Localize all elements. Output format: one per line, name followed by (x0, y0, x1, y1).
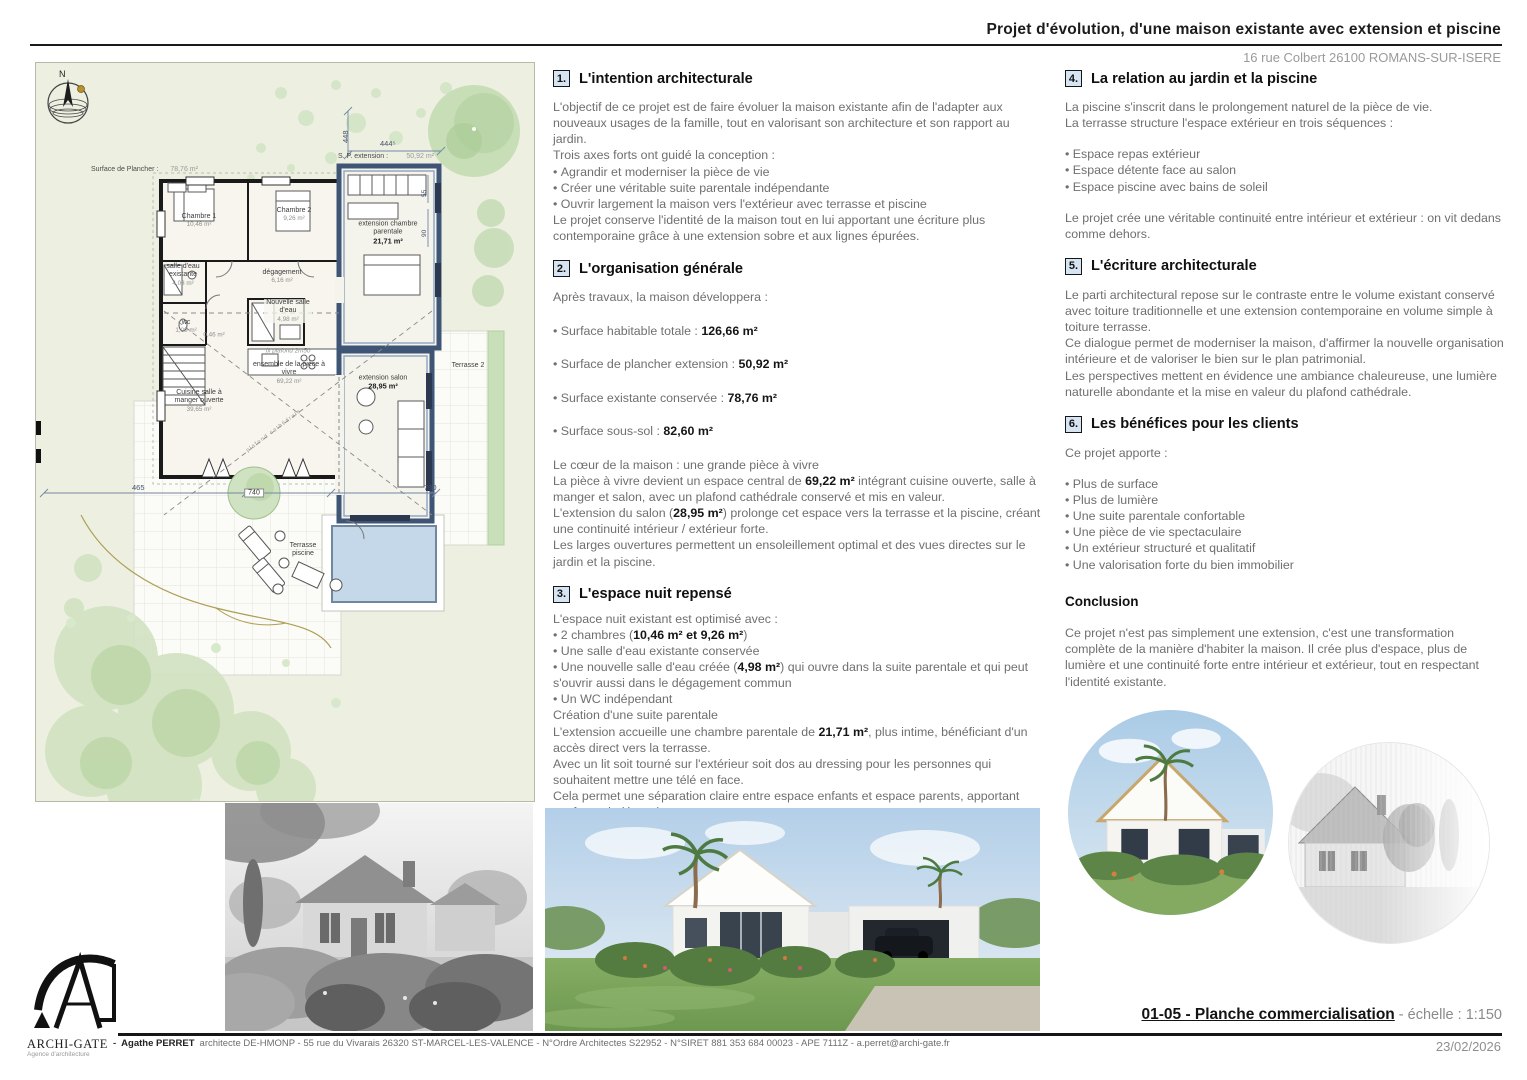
svg-text:N: N (59, 69, 66, 79)
s2-intro: Après travaux, la maison développera : (553, 289, 1042, 305)
surface-plancher-label: Surface de Plancher :78,76 m² (91, 166, 198, 173)
room-placard: 0,46 m² (203, 331, 224, 338)
scale-value: échelle : 1:150 (1408, 1007, 1502, 1023)
section-2-badge: 2. (553, 260, 570, 277)
s6-bullet-5: Un extérieur structuré et qualitatif (1065, 540, 1505, 556)
section-4-title: La relation au jardin et la piscine (1091, 71, 1317, 87)
conclusion-title: Conclusion (1065, 593, 1505, 611)
s3-intro: L'espace nuit existant est optimisé avec… (553, 611, 1042, 627)
s3-p1: Création d'une suite parentale (553, 707, 1042, 723)
s1-p2: Trois axes forts ont guidé la conception… (553, 147, 1042, 163)
title-block: 01-05 - Planche commercialisation - éche… (1142, 1006, 1503, 1024)
agency-name: ARCHI-GATE (27, 1038, 108, 1051)
room-cuisine: Cuisine salle à manger ouverte39,65 m² (166, 389, 232, 413)
s3-bullet-3: Une nouvelle salle d'eau créée (4,98 m²)… (553, 659, 1042, 691)
dim-90: 90 (421, 230, 428, 237)
s4-p1: La piscine s'inscrit dans le prolongemen… (1065, 99, 1505, 115)
scale-separator: - (1395, 1007, 1408, 1023)
s2-stat-1: Surface habitable totale : 126,66 m² (553, 323, 1042, 339)
s1-bullet-1: Agrandir et moderniser la pièce de vie (553, 164, 1042, 180)
section-5-badge: 5. (1065, 258, 1082, 275)
date: 23/02/2026 (1436, 1039, 1501, 1054)
section-5-title: L'écriture architecturale (1091, 258, 1257, 274)
archigate-monogram (26, 948, 121, 1037)
tree-large-icon (428, 85, 520, 177)
s5-p2: Ce dialogue permet de moderniser la mais… (1065, 335, 1505, 367)
note-faux-plafond: fx plafond 2m50 (266, 347, 311, 354)
boundary-ticks (36, 421, 41, 463)
dim-760: 760 (424, 483, 437, 492)
s3-p3: Avec un lit soit tourné sur l'extérieur … (553, 756, 1042, 788)
credits-separator: - (113, 1038, 116, 1049)
s6-bullet-1: Plus de surface (1065, 476, 1505, 492)
s1-bullet-3: Ouvrir largement la maison vers l'extéri… (553, 196, 1042, 212)
room-extension-parentale: extension chambre parentale21,71 m² (344, 220, 432, 245)
s4-bullet-1: Espace repas extérieur (1065, 146, 1505, 162)
conclusion-text: Ce projet n'est pas simplement une exten… (1065, 625, 1505, 690)
sheet-title: 01-05 - Planche commercialisation (1142, 1006, 1395, 1023)
dim-444: 444⁵ (380, 139, 396, 148)
s1-bullet-2: Créer une véritable suite parentale indé… (553, 180, 1042, 196)
dim-55: 55 (421, 190, 428, 197)
section-benefices: 6.Les bénéfices pour les clients Ce proj… (1065, 416, 1505, 690)
s2-stat-2: Surface de plancher extension : 50,92 m² (553, 356, 1042, 372)
pool (332, 526, 436, 602)
photo-existing-house-bw (225, 803, 533, 1031)
north-compass-icon: N (48, 69, 88, 123)
architect-details: architecte DE-HMONP - 55 rue du Vivarais… (200, 1038, 950, 1049)
circle-sketch-existing-house (1288, 742, 1490, 944)
presentation-board: Projet d'évolution, d'une maison existan… (0, 0, 1527, 1080)
room-ensemble: ensemble de la pièce à vivre69,22 m² (250, 361, 328, 385)
s2-p2: L'extension du salon (28,95 m²) prolonge… (553, 505, 1042, 537)
section-intention: 1.L'intention architecturale L'objectif … (553, 70, 1042, 244)
s2-stat-3: Surface existante conservée : 78,76 m² (553, 390, 1042, 406)
s6-bullet-3: Une suite parentale confortable (1065, 508, 1505, 524)
footer-credits: ARCHI-GATE Agence d'architecture - Agath… (27, 1038, 950, 1058)
agency-block: ARCHI-GATE Agence d'architecture (27, 1038, 108, 1058)
s3-bullet-2: Une salle d'eau existante conservée (553, 643, 1042, 659)
room-terrasse-piscine: Terrasse piscine (280, 542, 326, 559)
section-6-badge: 6. (1065, 416, 1082, 433)
footer-rule (118, 1033, 1502, 1036)
section-3-title: L'espace nuit repensé (579, 586, 732, 602)
sp-extension-label: S. P. extension :50,92 m² (338, 153, 434, 160)
s4-bullet-3: Espace piscine avec bains de soleil (1065, 179, 1505, 195)
section-1-title: L'intention architecturale (579, 71, 753, 87)
room-chambre2: Chambre 29,26 m² (277, 207, 312, 223)
section-organisation: 2.L'organisation générale Après travaux,… (553, 260, 1042, 570)
room-nouvelle-salle-eau: Nouvelle salle d'eau4,98 m² (264, 299, 312, 323)
s1-p3: Le projet conserve l'identité de la mais… (553, 212, 1042, 244)
section-1-badge: 1. (553, 70, 570, 87)
room-wc: wc1,00 m² (175, 319, 196, 335)
dim-740: 740 (244, 489, 264, 498)
site-plan-drawing: N (36, 63, 534, 801)
s1-p1: L'objectif de ce projet est de faire évo… (553, 99, 1042, 147)
section-6-title: Les bénéfices pour les clients (1091, 416, 1299, 432)
s3-bullet-1: 2 chambres (10,46 m² et 9,26 m²) (553, 627, 1042, 643)
room-terrasse2: Terrasse 2 (443, 362, 493, 370)
column-right: 4.La relation au jardin et la piscine La… (1065, 70, 1505, 706)
room-chambre1: Chambre 110,46 m² (182, 213, 217, 229)
circle-render-new-house (1068, 710, 1273, 915)
trees-right (472, 199, 514, 307)
architect-name: Agathe PERRET (121, 1038, 194, 1049)
dim-465: 465 (132, 483, 145, 492)
photo-project-render (545, 808, 1040, 1031)
s4-p3: Le projet crée une véritable continuité … (1065, 210, 1505, 242)
page-title: Projet d'évolution, d'une maison existan… (986, 21, 1501, 39)
agency-subtitle: Agence d'architecture (27, 1052, 108, 1059)
column-middle: 1.L'intention architecturale L'objectif … (553, 70, 1042, 836)
s2-p3: Les larges ouvertures permettent un enso… (553, 537, 1042, 569)
section-ecriture: 5.L'écriture architecturale Le parti arc… (1065, 258, 1505, 400)
room-extension-salon: extension salon28,95 m² (351, 375, 415, 392)
s4-bullet-2: Espace détente face au salon (1065, 162, 1505, 178)
section-espace-nuit: 3.L'espace nuit repensé L'espace nuit ex… (553, 586, 1042, 821)
s3-p2: L'extension accueille une chambre parent… (553, 724, 1042, 756)
section-3-badge: 3. (553, 586, 570, 603)
s2-subhead: Le cœur de la maison : une grande pièce … (553, 457, 1042, 473)
s4-p2: La terrasse structure l'espace extérieur… (1065, 115, 1505, 131)
s2-stat-4: Surface sous-sol : 82,60 m² (553, 423, 1042, 439)
section-jardin-piscine: 4.La relation au jardin et la piscine La… (1065, 70, 1505, 242)
room-degagement: dégagement6,16 m² (263, 269, 302, 285)
section-4-badge: 4. (1065, 70, 1082, 87)
section-2-title: L'organisation générale (579, 261, 743, 277)
project-address: 16 rue Colbert 26100 ROMANS-SUR-ISERE (1243, 50, 1501, 65)
site-plan: N Surface de Plancher :78,76 m² S. P. ex… (35, 62, 535, 802)
s3-bullet-4: Un WC indépendant (553, 691, 1042, 707)
room-salle-eau-existante: salle d'eau existante4,03 m² (160, 263, 206, 287)
s6-bullet-6: Une valorisation forte du bien immobilie… (1065, 557, 1505, 573)
s6-intro: Ce projet apporte : (1065, 445, 1505, 461)
s2-p1: La pièce à vivre devient un espace centr… (553, 473, 1042, 505)
s6-bullet-2: Plus de lumière (1065, 492, 1505, 508)
dim-448: 448 (341, 130, 350, 143)
header-rule (30, 44, 1502, 46)
s6-bullet-4: Une pièce de vie spectaculaire (1065, 524, 1505, 540)
s5-p1: Le parti architectural repose sur le con… (1065, 287, 1505, 335)
s5-p3: Les perspectives mettent en évidence une… (1065, 368, 1505, 400)
